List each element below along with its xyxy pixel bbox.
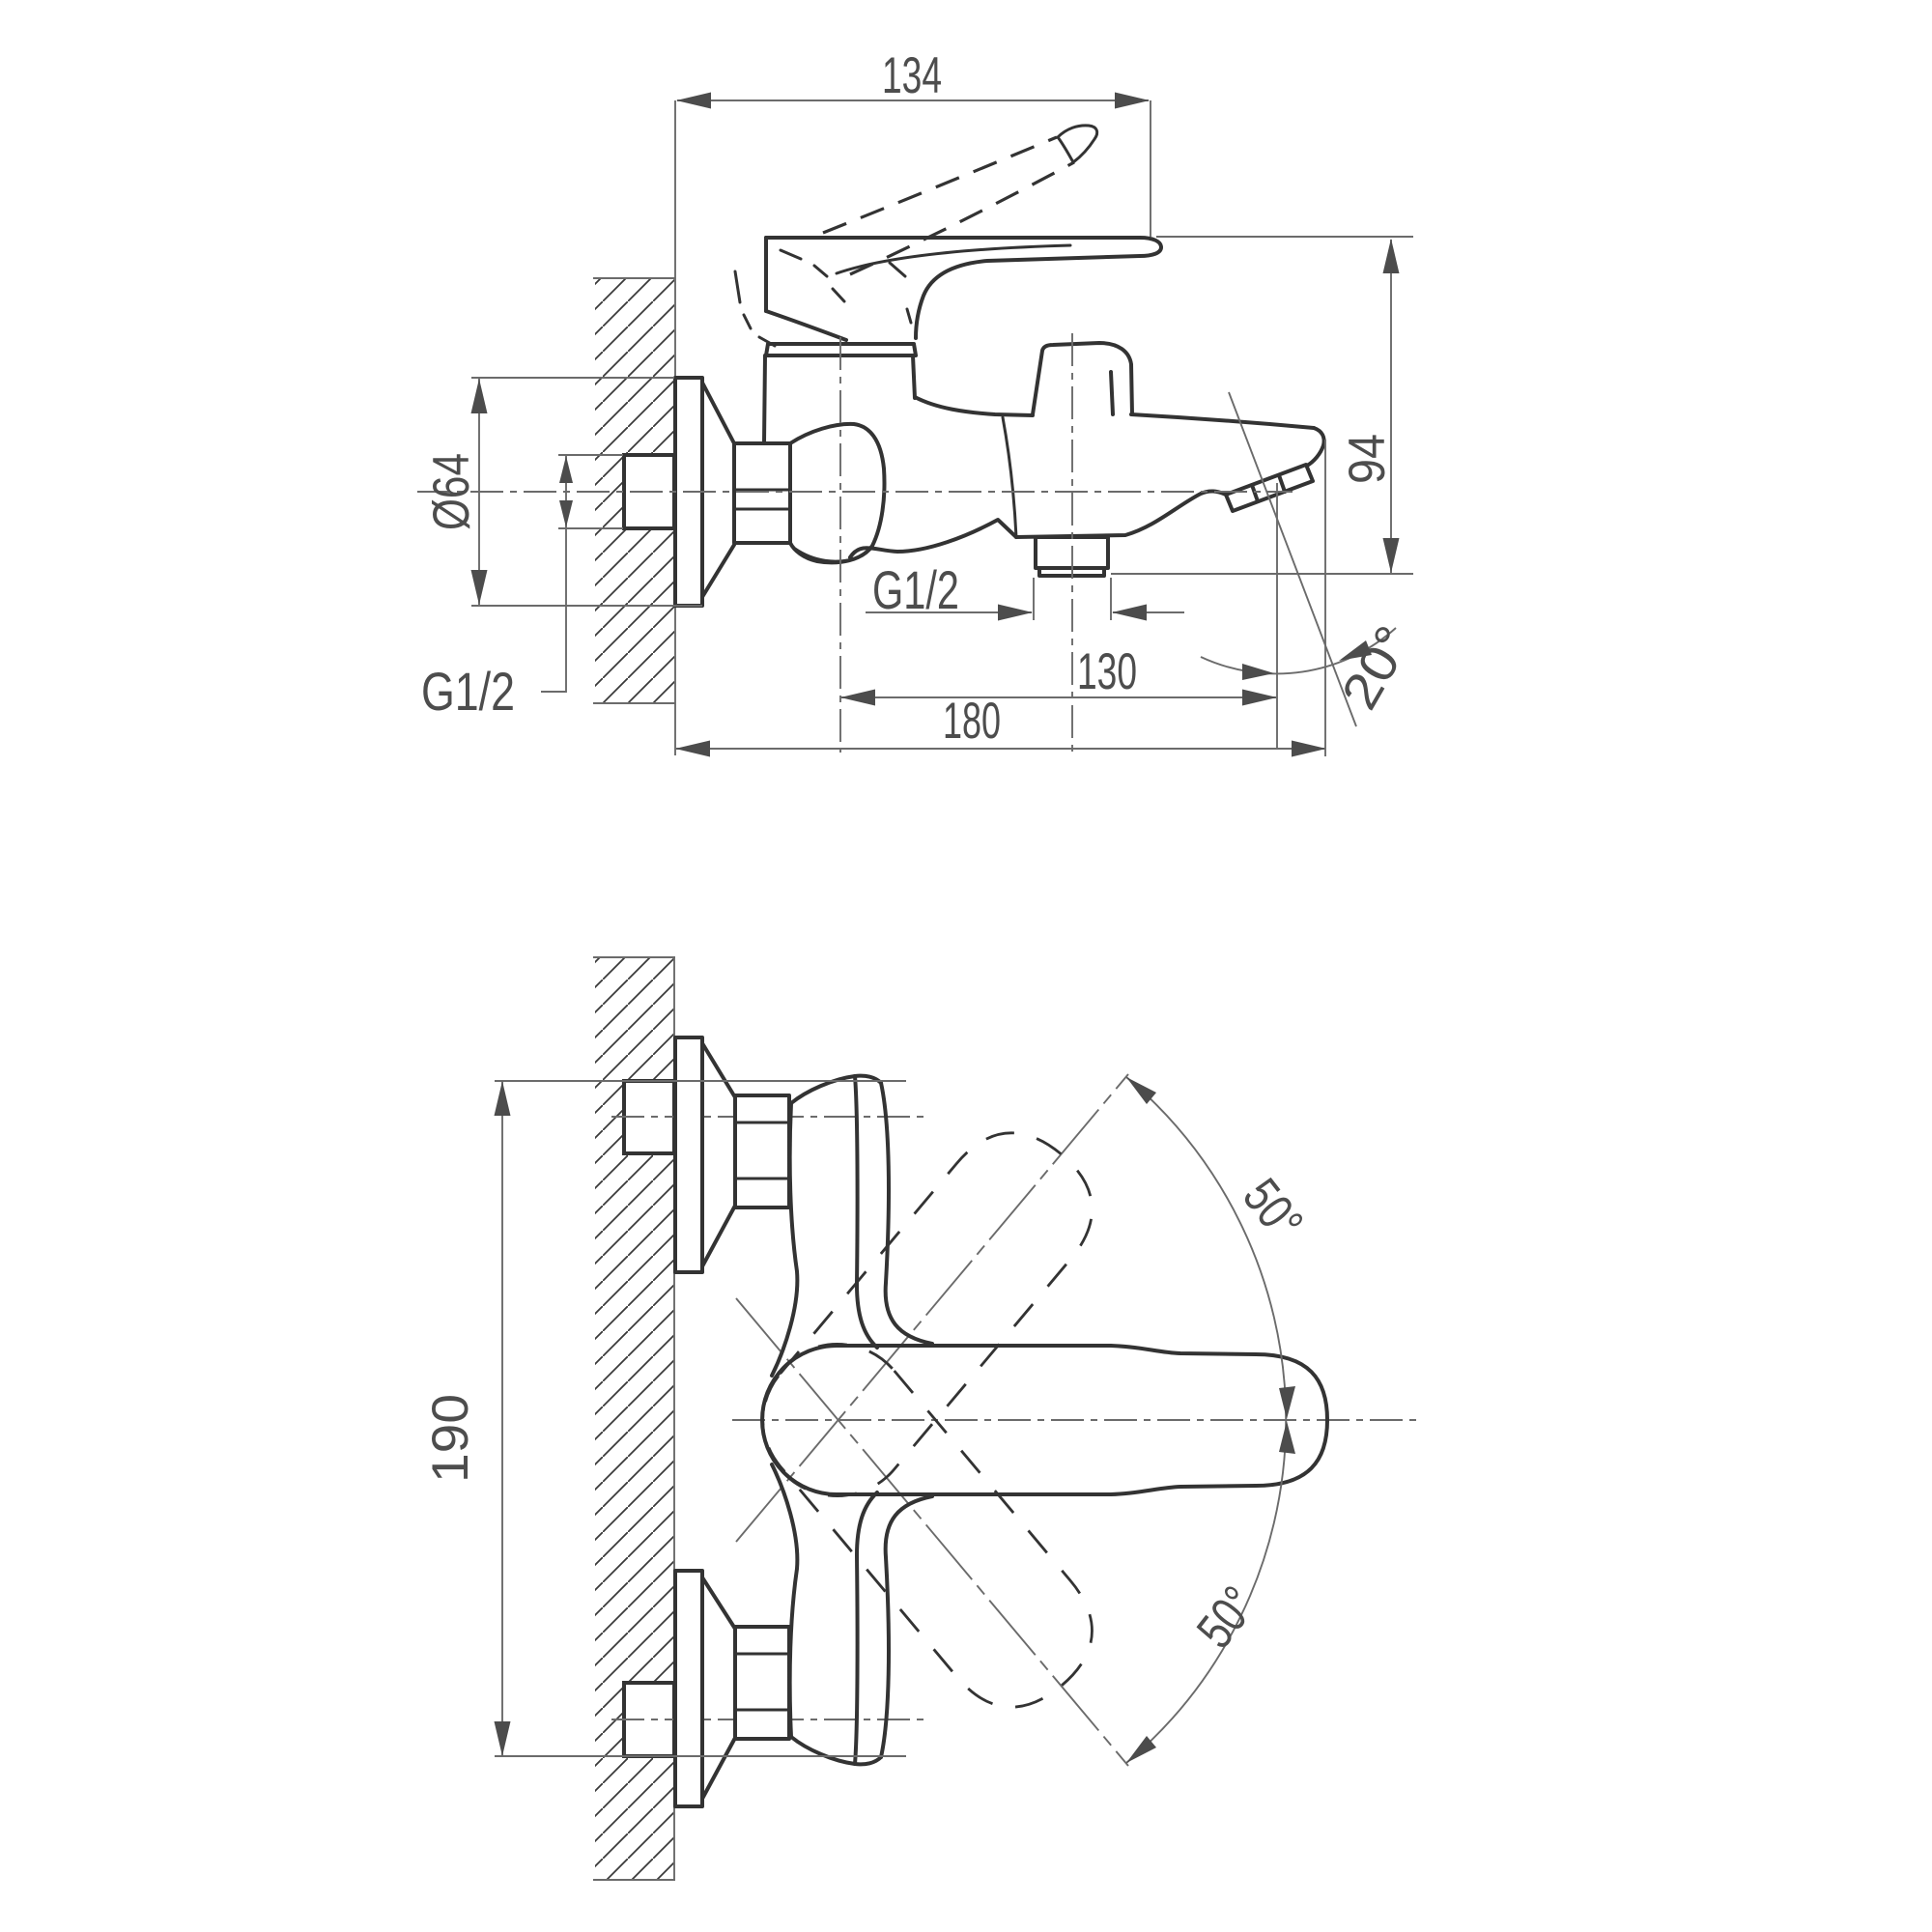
svg-text:180: 180 bbox=[943, 693, 1001, 750]
svg-text:G1/2: G1/2 bbox=[872, 559, 959, 620]
svg-text:G1/2: G1/2 bbox=[421, 661, 515, 722]
svg-text:130: 130 bbox=[1077, 643, 1137, 700]
svg-text:190: 190 bbox=[422, 1394, 479, 1483]
svg-text:94: 94 bbox=[1339, 434, 1396, 484]
svg-text:134: 134 bbox=[882, 47, 942, 104]
svg-text:Ø64: Ø64 bbox=[423, 453, 480, 530]
